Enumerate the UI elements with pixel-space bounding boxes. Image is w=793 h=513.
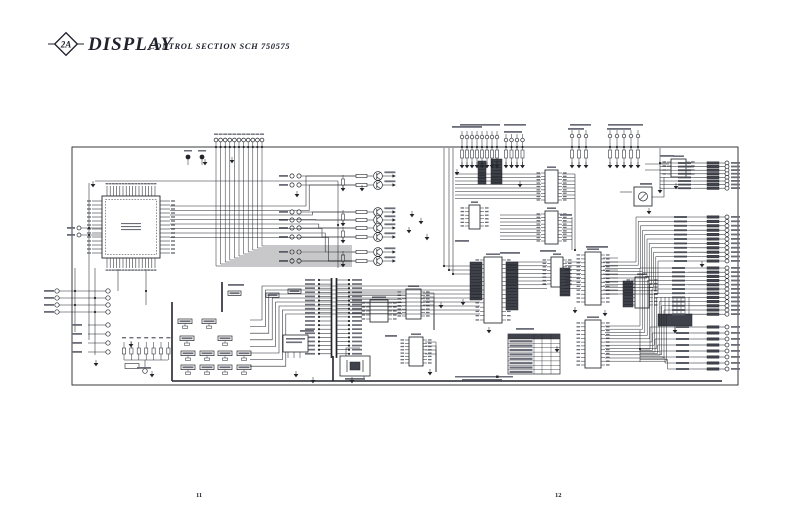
pin-label [87,224,91,225]
connector-pin [725,279,729,283]
ground-symbol [341,223,346,226]
resistor [707,356,719,359]
ground-symbol [341,240,346,243]
dip-ic-body [585,320,601,368]
pin-label [393,314,397,315]
junction-dot [318,283,320,285]
resistor [707,271,719,274]
input-connector-pin [290,174,294,178]
pin-label [150,269,153,270]
pin-label [731,229,740,231]
pin-label [577,258,581,259]
pin-label [563,223,567,224]
pin-label [731,220,740,222]
signal-label [384,232,395,234]
wire [262,142,352,246]
wire [170,185,356,211]
junction-dot [318,328,320,330]
ic-part-number [121,223,141,224]
connector-pin [725,228,729,232]
junction-dot [94,311,96,313]
resistor [578,150,581,158]
pin-label [171,244,175,245]
pin-label [305,287,315,289]
pin-label [393,310,397,311]
input-connector-pin [297,218,301,222]
pin-label [731,260,740,262]
pin-label [128,183,131,184]
junction-dot [348,279,350,281]
junction-dot [348,299,350,301]
connector-pin [725,361,729,365]
connector-pin [725,186,729,190]
pin-label [606,326,610,327]
ground-symbol [230,160,235,163]
resistor [707,238,719,241]
pin-label [171,252,175,253]
junction-dot [94,297,96,299]
junction-dot [630,146,632,148]
pin-label [577,278,581,279]
pin-label [305,316,315,318]
connector-pin [725,215,729,219]
junction-dot [348,287,350,289]
connector-pin [725,219,729,223]
connector-pin [725,300,729,304]
pin-label [184,150,192,152]
junction-dot [88,234,90,236]
input-connector-pin [297,174,301,178]
connector-pin [725,283,729,287]
resistor [707,313,719,316]
wire [652,177,664,197]
input-connector-pin [297,183,301,187]
transistor [374,257,383,266]
pin-label [563,199,567,200]
label-text [204,320,215,322]
junction-dot [448,269,450,271]
pin-label [563,172,567,173]
input-connector-pin [290,226,294,230]
junction-dot [466,146,468,148]
resistor [585,150,588,158]
resistor [223,372,228,374]
dip-ic-body [469,205,480,229]
pin-label [731,368,740,370]
label-text [202,352,213,354]
pin-label [476,319,480,320]
connector-pin [490,135,494,139]
pin-label [115,183,118,184]
pin-label [507,259,511,260]
pin-label [352,353,362,355]
resistor [466,150,469,158]
resistor [616,150,619,158]
wire [170,212,356,215]
pin-label [731,162,740,164]
pin-label [577,282,581,283]
resistor [707,183,719,186]
pin-label [731,296,740,298]
junction-dot [233,146,235,148]
pin-label [112,269,115,270]
label-text [180,320,191,322]
connector-pin [228,138,232,142]
pin-label [428,339,432,340]
resistor [516,150,519,158]
connector-pin [577,134,581,138]
junction-dot [224,146,226,148]
pin-label [563,196,567,197]
resistor [707,180,719,183]
junction-dot [585,146,587,148]
pin-label [426,295,430,296]
pin-label [141,269,144,270]
resistor [707,169,719,172]
pin-label [507,311,511,312]
pin-label [255,134,259,135]
net-label [279,184,288,186]
pin-label [171,216,175,217]
pin-label [731,362,740,364]
table-cell-text [510,353,533,355]
pin-label [87,200,91,201]
resistor [707,284,719,287]
connector-pin [251,138,255,142]
pin-label [577,334,581,335]
junction-dot [318,287,320,289]
junction-dot [348,283,350,285]
connector-pin [242,138,246,142]
connector-pin [480,135,484,139]
pin-label [577,297,581,298]
connector-pin [260,138,264,142]
test-point [200,155,205,160]
pin-label [577,270,581,271]
pin-label [87,248,91,249]
resistor [707,309,719,312]
connector-pin [214,138,218,142]
pin-label [305,300,315,302]
pin-label [731,284,740,286]
pin-label [398,308,402,309]
pin-label [118,183,121,184]
table-cell-text [510,358,533,360]
label-text [220,366,231,368]
connector-pin [470,135,474,139]
pin-label [543,283,547,284]
junction-dot [337,224,339,226]
connector-pin [55,310,59,314]
resistor [356,183,367,186]
pin-label [401,349,405,350]
connector-pin [77,226,81,230]
pin-label [362,318,366,319]
connector-pin [725,233,729,237]
label-box [125,364,139,369]
connector-pin [725,295,729,299]
wire [253,142,352,250]
resistor [707,267,719,270]
junction-dot [510,146,512,148]
pin-label [537,199,541,200]
net-label [72,342,82,344]
ground-symbol [91,184,96,187]
pin-label [731,301,740,303]
resistor [505,150,508,158]
junction-dot [571,146,573,148]
signal-label [384,247,395,249]
resistor [342,179,345,185]
pin-label [461,218,465,219]
resistor [707,251,719,254]
ground-symbol [518,184,523,187]
pin-label [731,280,740,282]
pin-label [428,359,432,360]
connector-pin [475,135,479,139]
pin-label [577,290,581,291]
pin-label [537,217,541,218]
resistor [707,292,719,295]
resistor [571,150,574,158]
pin-label [577,254,581,255]
pin-label [223,134,227,135]
connector-pin [584,134,588,138]
ground-symbol [407,230,412,233]
pin-label [563,179,567,180]
pin-label [87,220,91,221]
net-label [67,234,75,236]
junction-dot [637,146,639,148]
pin-label [537,220,541,221]
net-label [72,351,82,353]
resistor [707,368,719,371]
ground-symbol [461,302,466,305]
junction-dot [348,295,350,297]
schematic-drawing [44,124,740,385]
pin-label [109,269,112,270]
pin-label [606,364,610,365]
dip-ic-body [585,252,601,305]
connector-pin [725,337,729,341]
pin-label [731,166,740,168]
pin-label [577,322,581,323]
pin-label [144,337,148,338]
connector-pin [725,355,729,359]
pin-label [426,308,430,309]
pin-label [568,266,572,267]
ground-symbol [700,264,705,267]
junction-dot [318,332,320,334]
ground-symbol [439,305,444,308]
pin-label [691,161,695,162]
pin-label [260,134,264,135]
pin-label [159,337,163,338]
net-label [137,367,151,369]
pin-label [563,230,567,231]
resistor [242,358,247,360]
pin-label [485,207,489,208]
ground-symbol [520,165,525,168]
pin-label [577,360,581,361]
table-cell-text [510,371,533,373]
connector-pin [233,138,237,142]
pin-label [606,349,610,350]
pin-label [251,134,255,135]
pin-label [461,207,465,208]
label-text [183,366,194,368]
pin-label [171,212,175,213]
ground-symbol [658,190,663,193]
resistor [707,275,719,278]
junction-dot [220,146,222,148]
resistor [471,150,474,158]
connector-pin [237,138,241,142]
resistor-network [491,159,502,184]
net-label [586,246,608,248]
connector-pin [615,134,619,138]
pin-label [131,269,134,270]
pin-label [731,338,740,340]
pin-label [305,320,315,322]
junction-dot [348,340,350,342]
connector-pin [510,138,514,142]
pin-label [352,304,362,306]
pin-label [352,308,362,310]
wire [640,360,692,370]
junction-dot [318,308,320,310]
pin-label [606,262,610,263]
pin-label [428,343,432,344]
pin-label [563,189,567,190]
junction-dot [318,320,320,322]
pin-label [131,183,134,184]
dip-ic-body [370,300,388,322]
net-label [72,333,82,335]
net-label [279,260,288,262]
pin-label [398,312,402,313]
pin-label [138,183,141,184]
connector-pin [521,138,525,142]
ground-symbol [428,372,433,375]
table-cell-text [510,366,533,368]
resistor [707,176,719,179]
signal-arrow [392,226,396,229]
resistor [183,326,188,328]
pin-label [154,269,157,270]
connector-pin [725,274,729,278]
junction-dot [452,273,454,275]
resistor [707,260,719,263]
pin-label [731,247,740,249]
junction-dot [574,249,576,251]
pin-label [305,312,315,314]
signal-arrow [392,210,396,213]
junction-dot [318,304,320,306]
pin-label [141,183,144,184]
resistor [185,343,190,345]
resistor [637,150,640,158]
pin-label [606,297,610,298]
label-text [286,342,302,344]
resistor [207,326,212,328]
junction-dot [461,146,463,148]
pin-label [663,161,667,162]
pin-label [537,176,541,177]
note-symbol [496,376,499,378]
ground-symbol [504,165,509,168]
pin-label [137,337,141,338]
connector-pin [246,138,250,142]
connector-pin [608,134,612,138]
connector-pin [460,135,464,139]
pin-label [106,183,109,184]
net-label [540,250,556,252]
pin-label [606,353,610,354]
ground-symbol [129,344,134,347]
title-block: 2A DISPLAY CONTROL SECTION SCH 750575 [48,33,290,56]
resistor [707,338,719,341]
note-text [455,376,513,378]
pin-label [87,240,91,241]
pin-label [731,267,740,269]
pin-label [731,332,740,334]
pin-label [352,337,362,339]
resistor [476,150,479,158]
pin-label [537,172,541,173]
pin-label [606,330,610,331]
junction-dot [318,291,320,293]
resistor [707,173,719,176]
wire [170,224,356,228]
ground-symbol [622,165,627,168]
table-cell-text [510,362,533,364]
ground-symbol [515,165,520,168]
pin-label [731,169,740,171]
wire [225,142,352,262]
connector-pin [725,343,729,347]
pin-label [305,328,315,330]
pin-label [125,183,128,184]
junction-dot [238,146,240,148]
resistor [707,255,719,258]
resistor [356,259,367,262]
pin-label [563,182,567,183]
pin-label [144,183,147,184]
junction-dot [348,328,350,330]
pin-label [563,220,567,221]
net-label [44,290,54,292]
junction-dot [318,345,320,347]
ground-symbol [295,194,300,197]
junction-dot [491,146,493,148]
resistor-network [506,262,518,310]
pin-label [352,312,362,314]
ground-symbol [674,186,679,189]
pin-label [352,341,362,343]
connector-pin [725,349,729,353]
pin-label [606,254,610,255]
junction-dot [348,349,350,351]
ground-symbol [577,165,582,168]
pin-label [731,225,740,227]
resistor [496,150,499,158]
pin-label [577,330,581,331]
pin-label [563,227,567,228]
junction-dot [229,146,231,148]
ground-symbol [573,310,578,313]
pin-label [246,134,250,135]
